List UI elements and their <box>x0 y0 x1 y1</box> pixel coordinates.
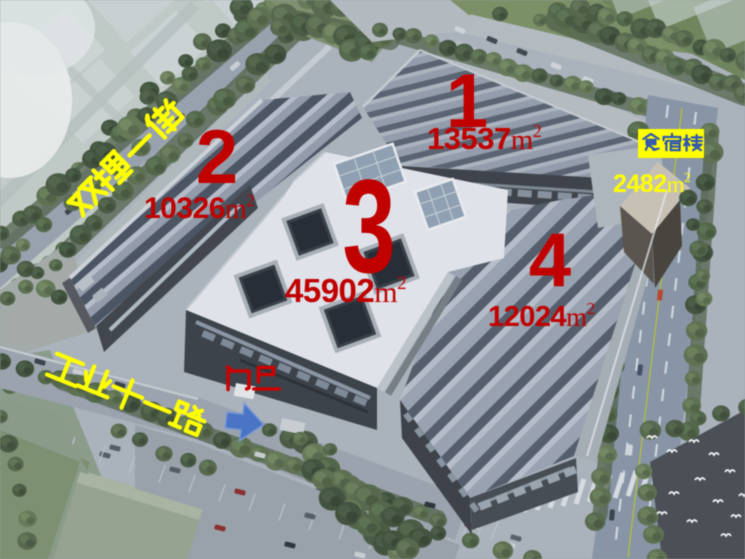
svg-text:12024m2: 12024m2 <box>488 299 595 333</box>
svg-text:45902m2: 45902m2 <box>285 272 406 309</box>
svg-text:4: 4 <box>529 218 571 303</box>
svg-text:13537m2: 13537m2 <box>427 121 541 156</box>
svg-text:2482m2: 2482m2 <box>613 170 691 198</box>
svg-text:10326m2: 10326m2 <box>144 191 254 225</box>
svg-text:2: 2 <box>196 115 238 200</box>
